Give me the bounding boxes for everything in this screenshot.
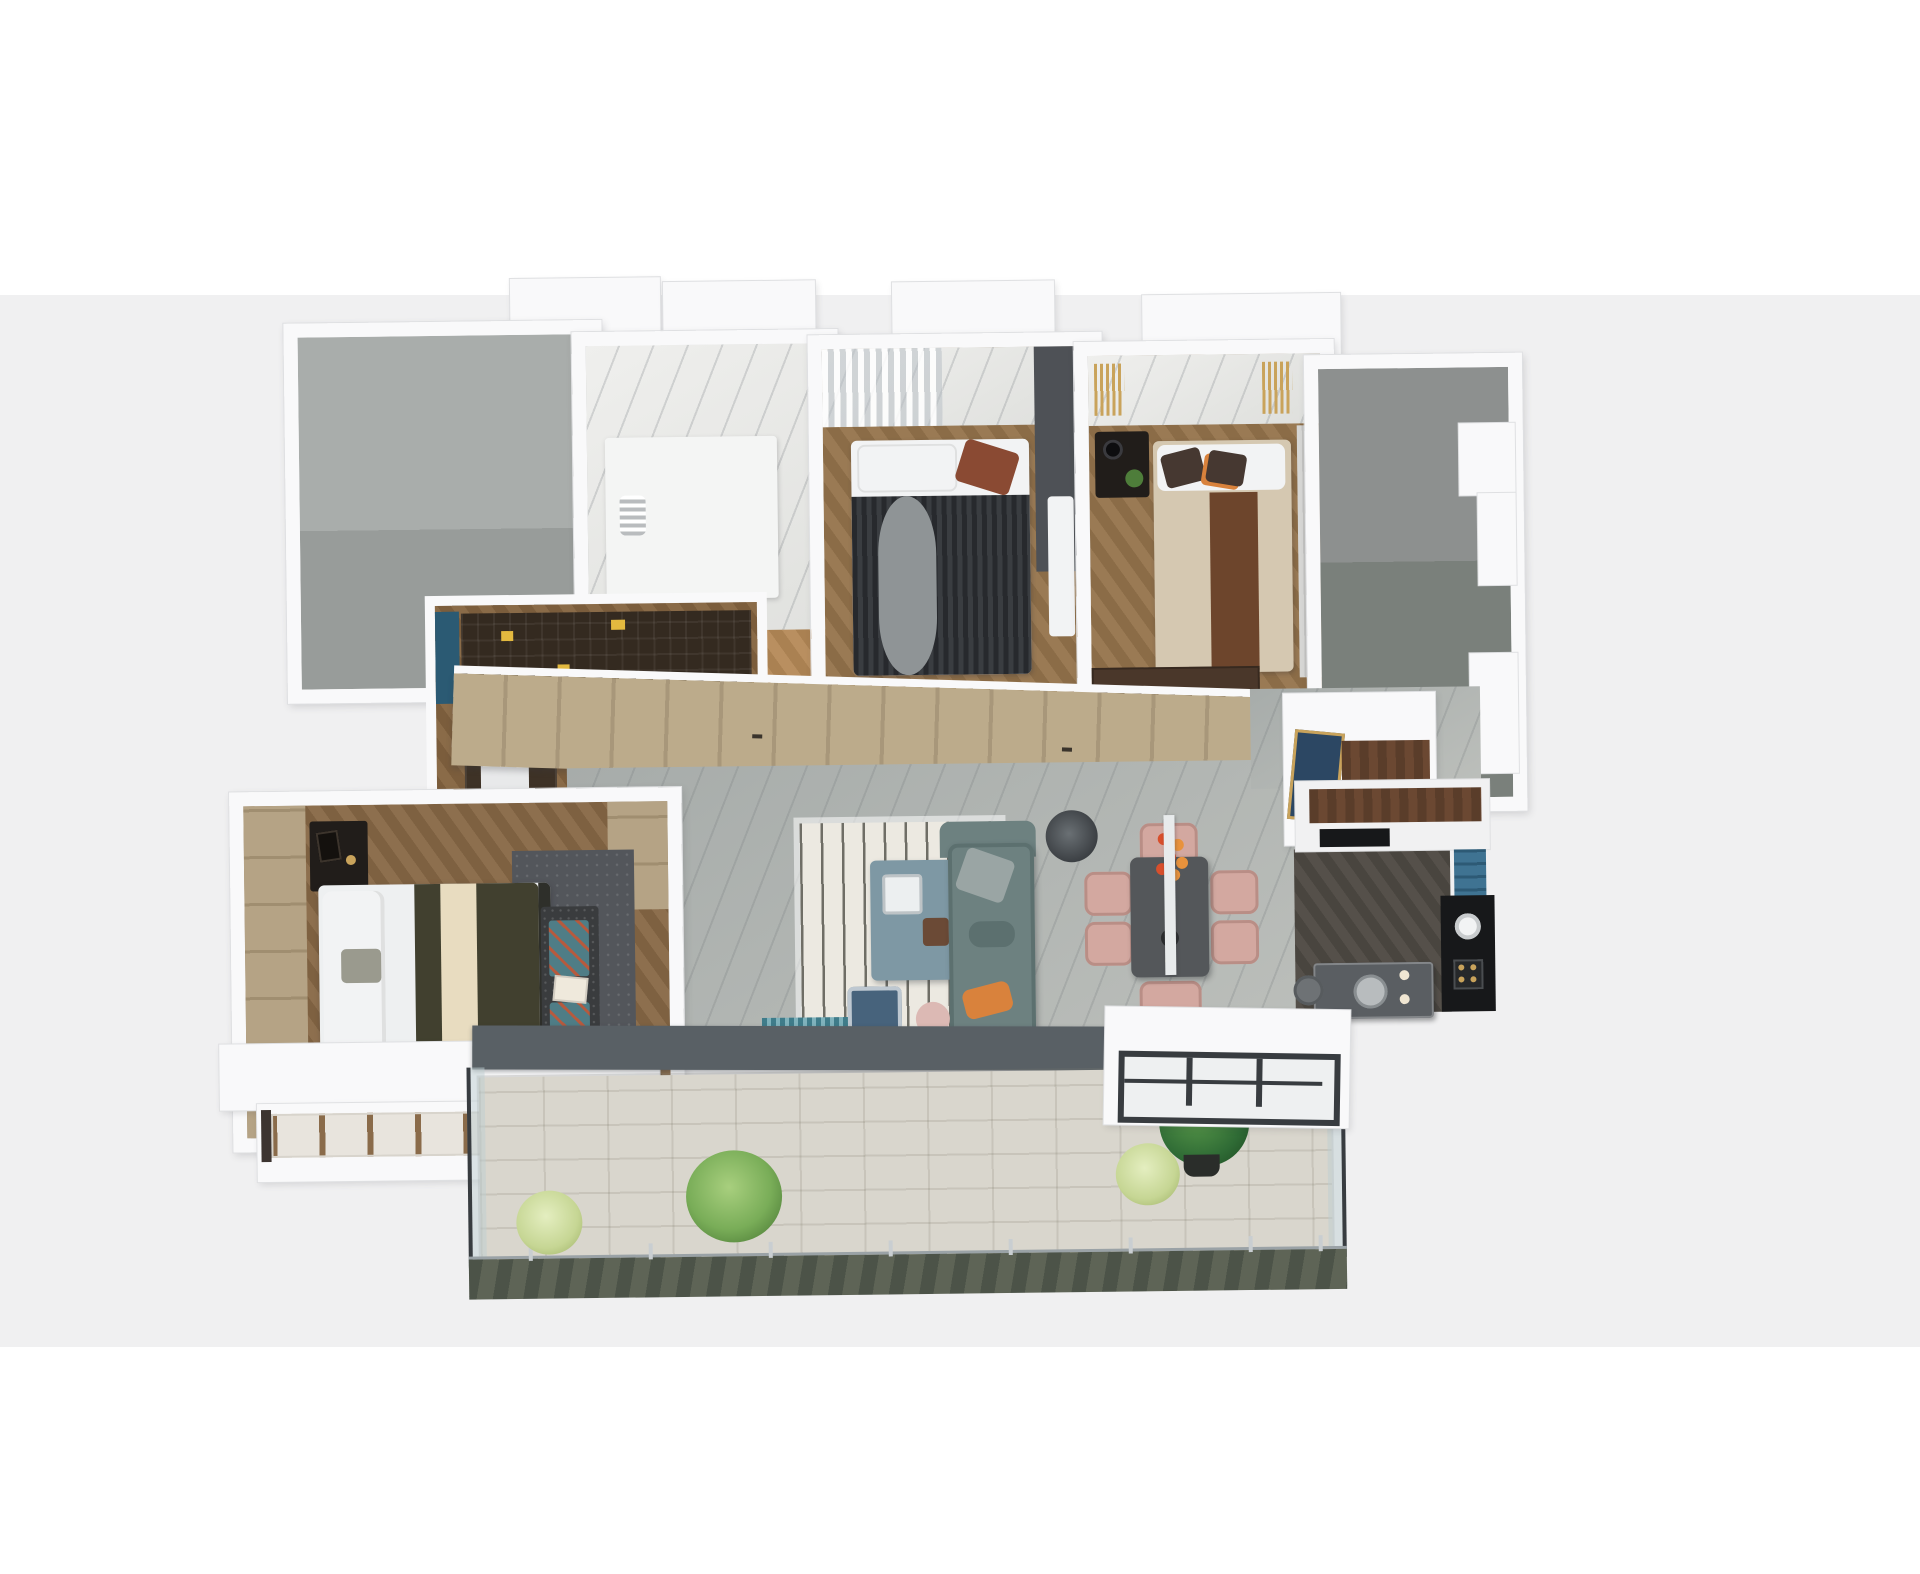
sage-cushion <box>341 949 381 983</box>
stair-step <box>1459 423 1516 496</box>
bed-3 <box>1153 439 1294 673</box>
bolster <box>969 921 1015 948</box>
bedroom-3 <box>1074 339 1339 734</box>
dining-chair <box>1084 871 1133 916</box>
nightstand <box>1095 431 1150 498</box>
silver-cushion <box>954 846 1016 904</box>
bedroom-3-dresser-band <box>1088 353 1321 426</box>
gold-decor <box>346 855 356 865</box>
door-handle <box>752 734 762 738</box>
brown-runner <box>1209 492 1259 671</box>
yellow-books <box>501 631 513 641</box>
accent-cushion <box>954 438 1021 497</box>
yellow-books <box>558 664 570 674</box>
walnut-counter <box>1309 787 1481 823</box>
dining-chair <box>1211 920 1260 965</box>
corner-post <box>261 1110 272 1162</box>
candle <box>1103 440 1123 460</box>
dining-chair <box>1085 921 1134 966</box>
leaning-frame <box>316 830 342 863</box>
open-book <box>552 975 588 1004</box>
floorplan <box>0 0 1920 1574</box>
master-nightstand <box>309 821 368 892</box>
glass-tray <box>1353 974 1387 1008</box>
glass-panel-left <box>466 1067 486 1267</box>
orange-pillow <box>961 980 1015 1021</box>
chevron-cushion <box>549 920 590 976</box>
stair-step <box>1478 493 1517 585</box>
black-cabinet-front <box>1320 828 1390 847</box>
door-handle <box>1062 747 1072 751</box>
plant-pot <box>1125 469 1143 487</box>
pendant-light-bar <box>1163 815 1176 975</box>
pendant-bulbs <box>1399 970 1409 980</box>
gold-curtain-left <box>1094 364 1125 416</box>
burners <box>1458 964 1464 970</box>
cushion <box>1205 449 1248 487</box>
pillows <box>857 444 958 493</box>
sink <box>1455 913 1481 939</box>
gray-throw <box>878 496 938 676</box>
window-transom <box>1124 1079 1322 1086</box>
bedside-ledge <box>1048 496 1076 636</box>
plant-pot <box>1184 1154 1220 1176</box>
sheer-curtain <box>822 348 943 427</box>
bar-stool <box>1293 975 1323 1005</box>
kitchen-balcony <box>1104 1006 1351 1128</box>
dining-chair <box>1210 870 1259 915</box>
sofa <box>948 843 1036 1040</box>
box <box>923 918 949 946</box>
gold-curtain-right <box>1262 361 1293 413</box>
balcony-windows <box>1118 1051 1341 1126</box>
yellow-books <box>611 620 625 630</box>
gas-stove <box>1453 959 1483 989</box>
kitchen <box>1289 775 1504 1026</box>
bedroom-2 <box>808 332 1107 726</box>
appliance-wall <box>1440 895 1495 1012</box>
kitchen-cabinets <box>1295 779 1490 851</box>
tray <box>882 874 922 914</box>
bed-2 <box>851 439 1032 676</box>
zebra-figurine <box>619 495 645 535</box>
